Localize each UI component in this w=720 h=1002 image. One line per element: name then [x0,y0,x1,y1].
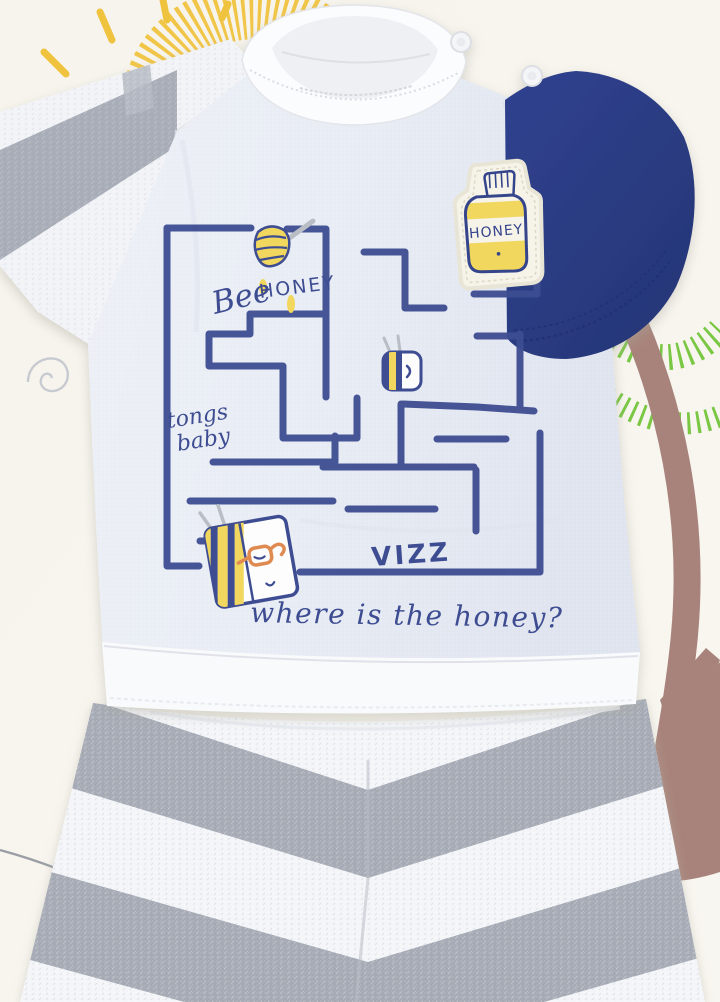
product-photo: Bee HONEY tongs baby VIZZ where is the h… [0,0,720,1002]
question-text: where is the honey? [250,596,564,634]
snap-button [451,32,471,52]
snap-button [522,66,542,86]
shorts [20,690,710,1002]
vizz-text: VIZZ [370,538,451,573]
scene: Bee HONEY tongs baby VIZZ where is the h… [0,0,720,1002]
